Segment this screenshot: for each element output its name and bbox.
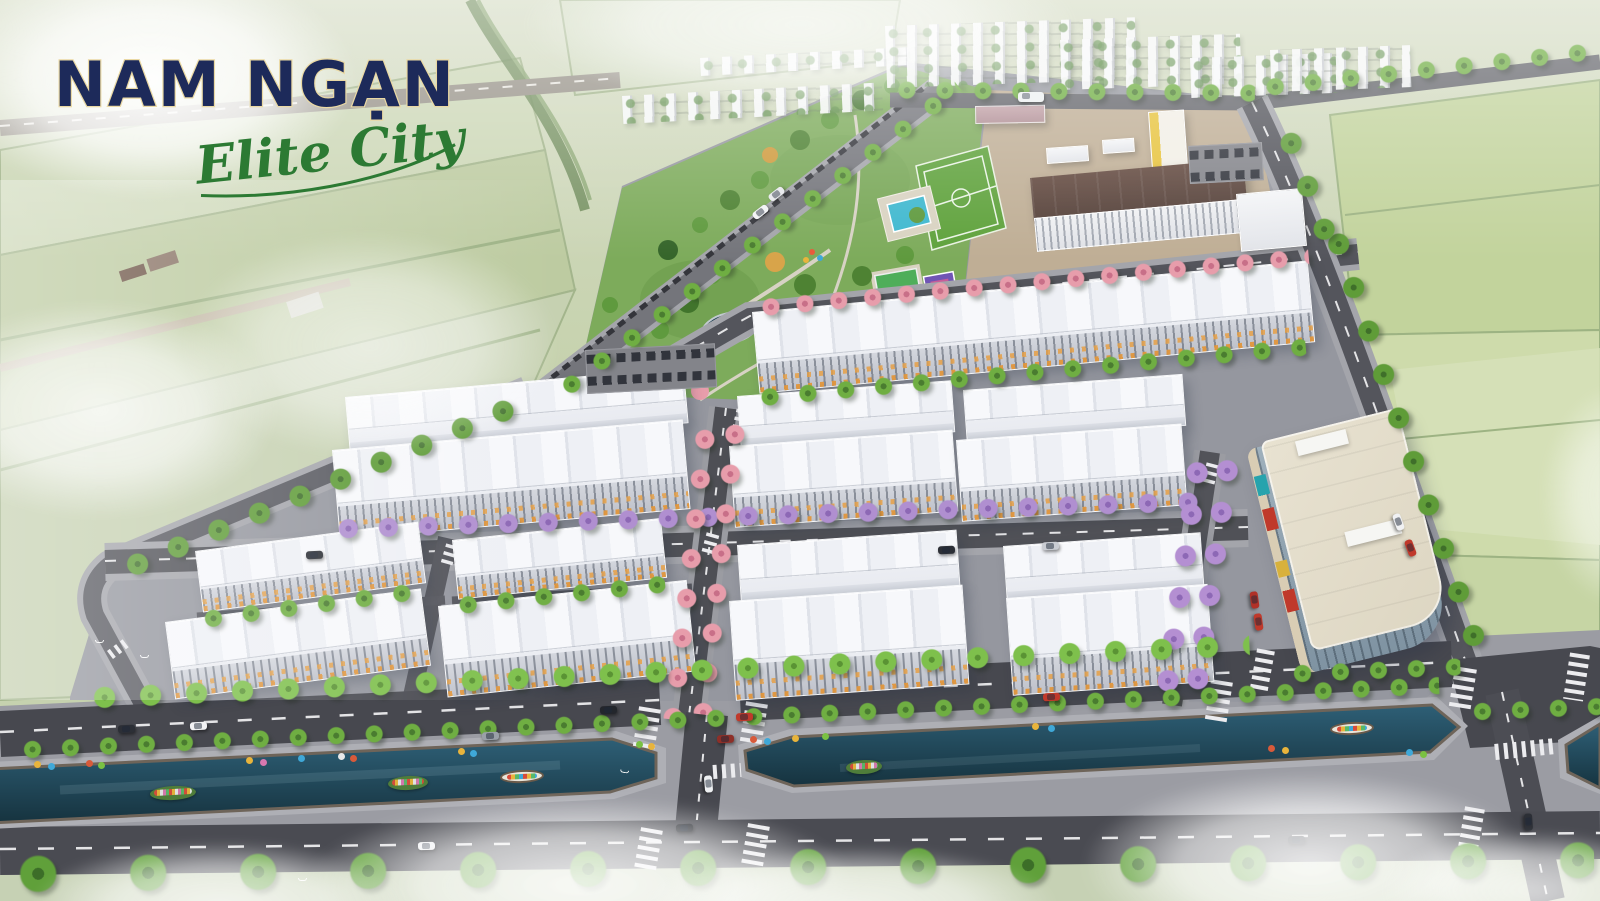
school-canopy bbox=[975, 105, 1045, 124]
car bbox=[676, 824, 693, 833]
car bbox=[704, 775, 713, 793]
field-plot bbox=[1330, 80, 1600, 335]
bus bbox=[1018, 92, 1044, 102]
car bbox=[1524, 813, 1533, 831]
townhouse-row bbox=[1006, 584, 1214, 696]
townhouse-row bbox=[729, 585, 969, 701]
school-tower bbox=[1236, 188, 1307, 252]
car bbox=[118, 725, 135, 734]
car bbox=[736, 713, 753, 722]
car bbox=[1042, 542, 1059, 551]
promenade-umbrellas bbox=[0, 0, 7, 7]
distant-villas bbox=[1270, 45, 1411, 92]
road-boulevard-upper bbox=[0, 702, 660, 734]
car bbox=[938, 546, 955, 555]
road-boulevard-lower bbox=[0, 835, 1600, 851]
car bbox=[600, 706, 617, 715]
car bbox=[482, 732, 499, 741]
school-parking bbox=[1188, 142, 1264, 184]
townhouse-row bbox=[729, 430, 958, 528]
school-outbuilding bbox=[1102, 138, 1135, 154]
car bbox=[1043, 693, 1060, 702]
car bbox=[418, 842, 435, 850]
car bbox=[190, 722, 207, 731]
car bbox=[306, 551, 323, 560]
car bbox=[1288, 836, 1305, 844]
car bbox=[717, 735, 734, 744]
project-logo: NAM NGẠN Elite City bbox=[48, 40, 488, 200]
brand-line1: NAM NGẠN bbox=[54, 48, 456, 121]
park-parking bbox=[585, 343, 717, 394]
school-outbuilding bbox=[1046, 145, 1089, 164]
aerial-masterplan-rendering: NAM NGẠN Elite City bbox=[0, 0, 1600, 901]
townhouse-row bbox=[956, 423, 1187, 521]
